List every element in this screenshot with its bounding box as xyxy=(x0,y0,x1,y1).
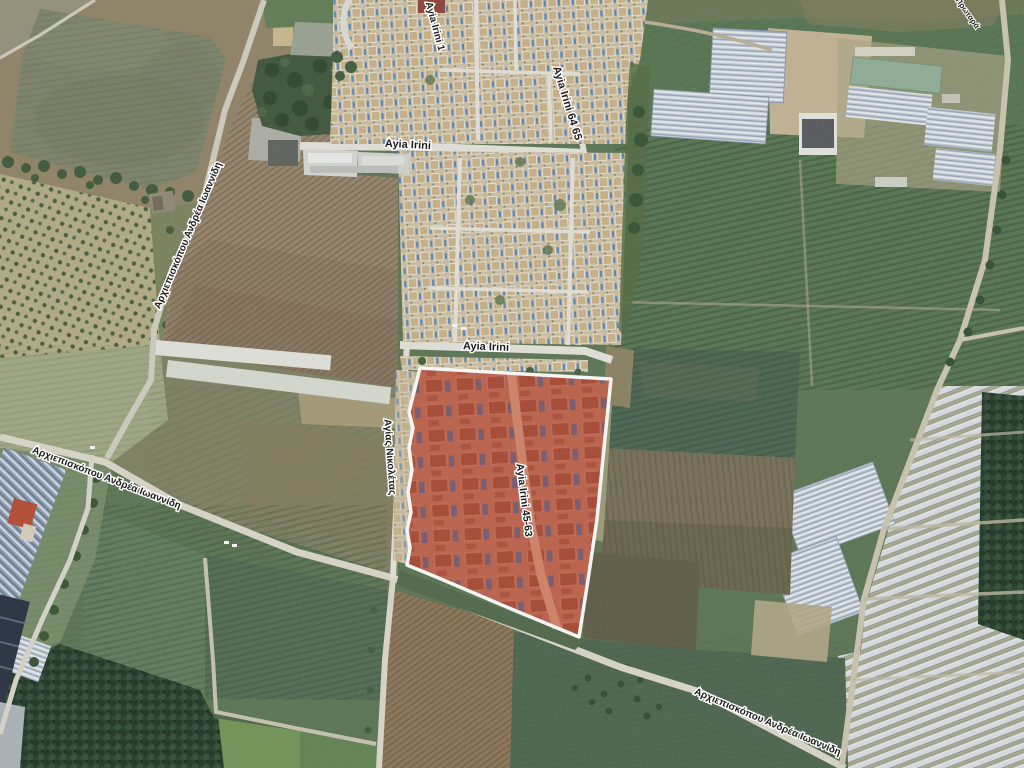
svg-text:Ayia Irini: Ayia Irini xyxy=(385,138,432,152)
svg-text:Ayia Irini: Ayia Irini xyxy=(463,340,509,354)
